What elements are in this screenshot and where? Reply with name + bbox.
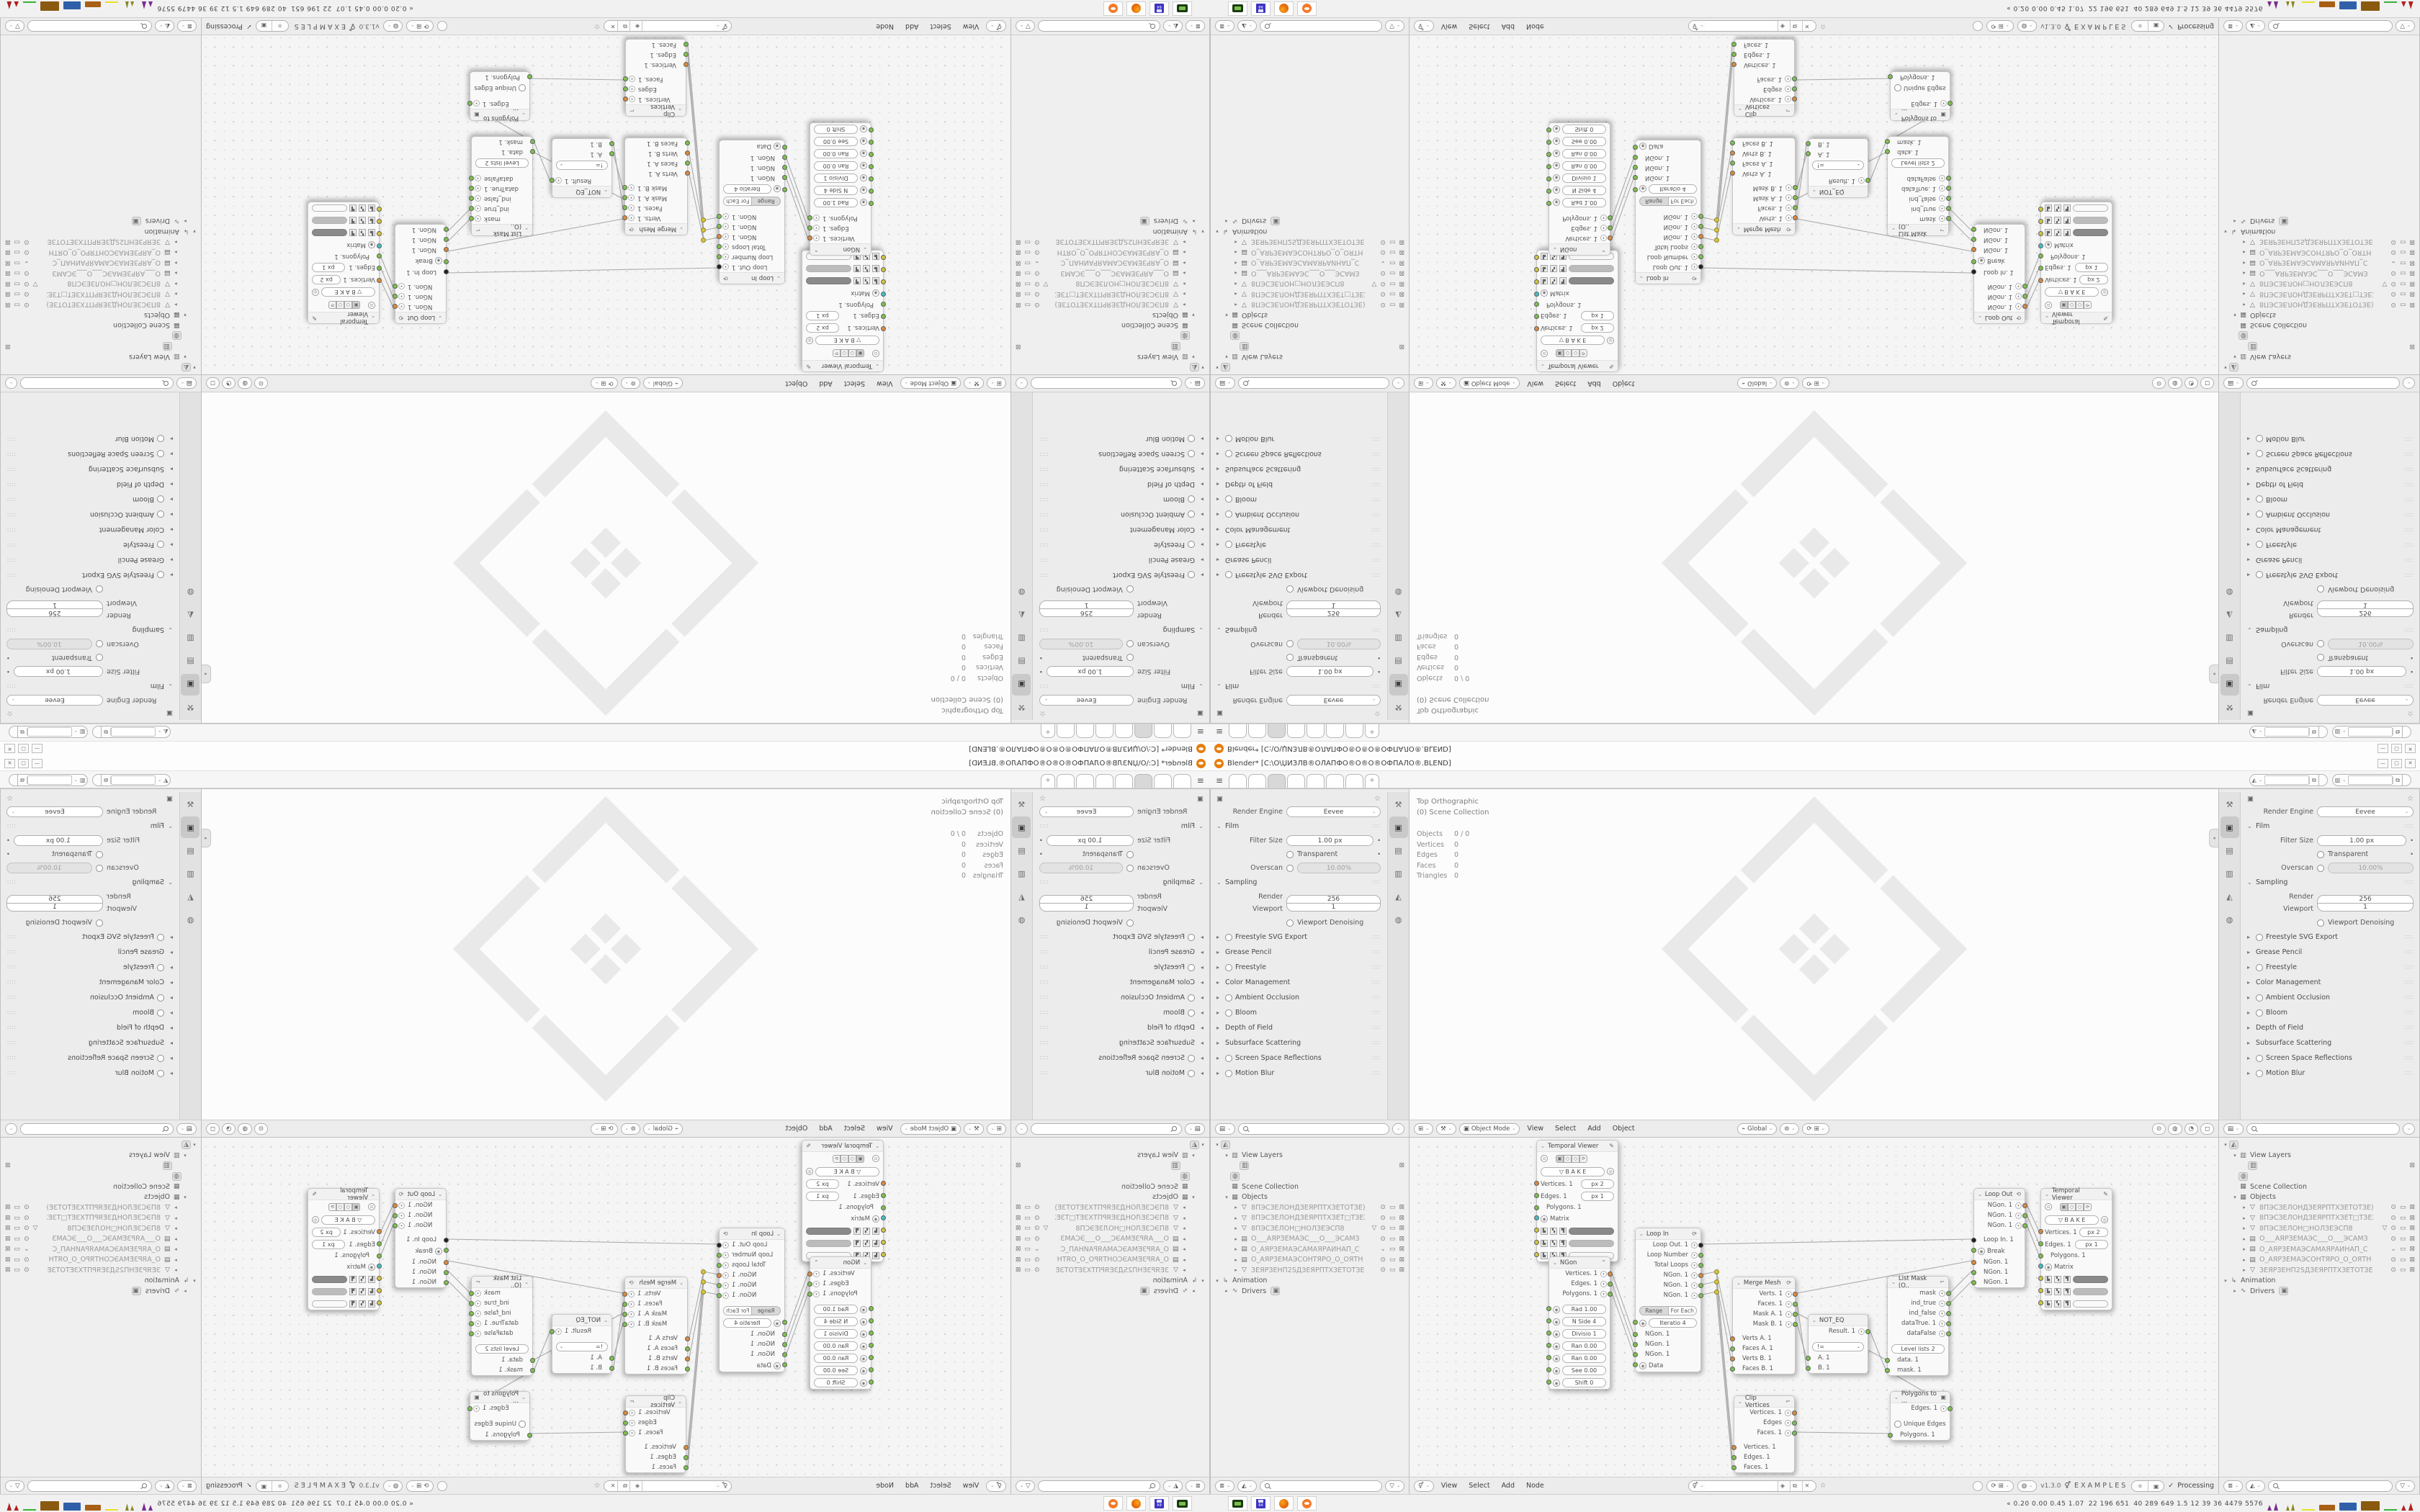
disclosure-icon[interactable]: ▸ bbox=[172, 1225, 179, 1231]
outliner-editor-type-button[interactable]: ≣⌄ bbox=[1186, 1480, 1205, 1492]
bake-button[interactable]: ▽ B A K E bbox=[2045, 288, 2099, 297]
filter-funnel-icon[interactable]: ▽ bbox=[1371, 1225, 1376, 1232]
outliner-display-mode[interactable]: ◭⌄ bbox=[1163, 21, 1183, 32]
mini-toggle-icon[interactable]: ▙ bbox=[872, 1228, 879, 1235]
socket-dropdown-icon[interactable]: ▾ bbox=[1939, 196, 1945, 202]
filter-funnel-icon[interactable]: ▽ bbox=[2382, 280, 2387, 287]
app-menu-icon[interactable]: ≡ bbox=[1216, 775, 1223, 786]
px-field[interactable]: px 2 bbox=[806, 1179, 839, 1189]
panel-checkbox[interactable] bbox=[1225, 451, 1232, 458]
attribute-bar[interactable] bbox=[2073, 1276, 2108, 1283]
toggle-icon[interactable]: ⟳ bbox=[833, 350, 841, 358]
socket-dropdown-icon[interactable]: ▾ bbox=[722, 224, 729, 230]
taskbar-app-floppy[interactable]: 64 bbox=[1149, 1, 1169, 16]
minimize-button[interactable]: — bbox=[2378, 744, 2388, 754]
panel-header-film[interactable]: ⌄Film∷∷ bbox=[6, 819, 173, 834]
outliner-row[interactable]: ▸▤О___АЯРЗЕМАЭС___О___ЭСАМЗ⊙▭⊠ bbox=[1013, 1234, 1206, 1245]
workspace-tab-4[interactable] bbox=[1287, 724, 1305, 738]
input-socket[interactable] bbox=[869, 1306, 874, 1311]
input-socket[interactable] bbox=[2038, 266, 2043, 271]
outliner-row[interactable]: ▸▽8ПЭСЗЕЛОНДЗЕЯРПТХЗЕТ□ТЗЕХ⊙▭⊠ bbox=[2, 1213, 198, 1224]
output-socket[interactable] bbox=[1793, 1322, 1798, 1327]
collapsed-panel-freestyle-svg-export[interactable]: ▸Freestyle SVG Export∷∷ bbox=[6, 930, 173, 945]
input-socket[interactable] bbox=[1546, 1343, 1551, 1348]
value-field[interactable]: Level lists 2 bbox=[475, 158, 529, 168]
socket-dropdown-icon[interactable]: ▾ bbox=[629, 76, 635, 83]
input-toggle-icon[interactable]: ◉ bbox=[1639, 143, 1646, 150]
value-field[interactable]: Level lists 2 bbox=[1891, 1344, 1945, 1354]
copy-icon[interactable]: ⧉ bbox=[18, 777, 27, 784]
reroute-dot[interactable] bbox=[1714, 217, 1719, 222]
outliner-row[interactable]: ▾↳Animation bbox=[1214, 226, 1407, 237]
disclosure-icon[interactable]: ▾ bbox=[2231, 312, 2238, 318]
value-field[interactable]: Iteratio 4 bbox=[723, 184, 771, 194]
taskbar-app-floppy[interactable]: 64 bbox=[1251, 1496, 1270, 1511]
input-socket[interactable] bbox=[1971, 1248, 1976, 1253]
scene-selector-input[interactable] bbox=[111, 775, 156, 785]
disclosure-icon[interactable]: ▸ bbox=[172, 1246, 179, 1252]
properties-tab-scene[interactable]: ◭ bbox=[1389, 886, 1408, 907]
taskbar-app-firefox[interactable] bbox=[1126, 1496, 1146, 1511]
visibility-eye-icon[interactable]: ⊙ bbox=[1034, 1204, 1040, 1211]
output-socket[interactable] bbox=[2022, 1203, 2027, 1208]
node-header[interactable]: ⌄Temporal Viewer✎ bbox=[308, 1189, 379, 1200]
node-loop-in[interactable]: ⌄Loop In⟳Loop Out. 1▾Loop Number▾Total L… bbox=[1635, 1228, 1701, 1372]
output-socket[interactable] bbox=[1698, 1283, 1703, 1288]
mini-toggle-icon[interactable]: ▙ bbox=[2045, 1288, 2052, 1295]
mini-toggle-icon[interactable]: ▜ bbox=[853, 266, 861, 273]
mini-toggle-icon[interactable]: ▜ bbox=[2063, 1288, 2071, 1295]
outliner-row[interactable]: ▸▽8ПЭСЗЕЛОНДЗЕЯРПТХЗЕТ□ТЗЕХ⊙▭⊠ bbox=[1013, 1213, 1206, 1224]
output-socket[interactable] bbox=[393, 294, 398, 300]
visibility-eye-icon[interactable]: ⊙ bbox=[1380, 1204, 1386, 1211]
outliner-search-input[interactable] bbox=[1260, 21, 1383, 32]
input-socket[interactable] bbox=[1971, 238, 1976, 243]
collapsed-panel-depth-of-field[interactable]: ▸Depth of Field∷∷ bbox=[1039, 477, 1204, 492]
disclosure-icon[interactable]: ▸ bbox=[1232, 260, 1240, 266]
input-socket[interactable] bbox=[782, 1352, 787, 1357]
node-temporal-viewer-1[interactable]: ⌄Temporal Viewer✎⊙▣○○⟳▽ B A K E◎Vertices… bbox=[1536, 1140, 1618, 1262]
outliner-row[interactable]: ▸▽8ПЭСЗЕЛОНДЗЕЯРПТХЗЕТОТЗЕ)⊙▭⊠ bbox=[1214, 300, 1407, 310]
disclosure-icon[interactable]: ▸ bbox=[1180, 1246, 1188, 1252]
render-camera-icon[interactable]: ⊠ bbox=[1399, 269, 1404, 276]
properties-filter-button[interactable]: ⌄ bbox=[2403, 378, 2415, 390]
attribute-bar[interactable] bbox=[2073, 1288, 2108, 1295]
mini-toggle-icon[interactable]: ▜ bbox=[2063, 205, 2071, 212]
snap-pair-button[interactable]: ⟳⊞⌄ bbox=[1986, 1480, 2013, 1492]
value-field[interactable]: Divisio 1 bbox=[814, 174, 858, 183]
node-tree-name-input[interactable] bbox=[1706, 22, 1775, 31]
disclosure-icon[interactable]: ▾ bbox=[1214, 1142, 1221, 1148]
outliner-row[interactable]: ▦Scene Collection bbox=[1013, 320, 1206, 331]
reroute-dot[interactable] bbox=[1714, 238, 1719, 243]
input-toggle-icon[interactable]: ◉ bbox=[860, 175, 867, 182]
collapsed-panel-bloom[interactable]: ▸Bloom∷∷ bbox=[1039, 1005, 1204, 1020]
socket-dropdown-icon[interactable]: ▾ bbox=[722, 1272, 729, 1279]
render-camera-icon[interactable]: ⊠ bbox=[2409, 1256, 2415, 1264]
properties-search-input[interactable] bbox=[20, 1123, 174, 1135]
mini-toggle-icon[interactable]: ▚ bbox=[2054, 230, 2061, 237]
view-layer-selector-cap[interactable] bbox=[9, 726, 17, 738]
scene-selector-pill[interactable]: ◭⌄⧉ bbox=[2249, 726, 2319, 738]
input-socket[interactable] bbox=[1731, 1455, 1736, 1460]
snap-pair-button[interactable]: ⟳⊞⌄ bbox=[1986, 21, 2013, 32]
close-button[interactable]: ✕ bbox=[2405, 744, 2416, 754]
input-socket[interactable] bbox=[1534, 1228, 1539, 1233]
properties-tab-scene[interactable]: ◭ bbox=[181, 886, 200, 907]
outliner-row[interactable]: ▾▥View Layers bbox=[2222, 351, 2418, 362]
viewport-display-icon[interactable]: ▭ bbox=[1389, 1256, 1396, 1264]
viewport-display-icon[interactable]: ▭ bbox=[14, 1266, 21, 1274]
output-socket[interactable] bbox=[717, 265, 722, 270]
denoise-checkbox[interactable] bbox=[1286, 586, 1294, 593]
view-layer-selector-pill[interactable]: ▥⌄⧉ bbox=[2332, 726, 2403, 738]
node-header[interactable]: ⌄List Mask (O..⌐ bbox=[472, 224, 532, 235]
visibility-eye-icon[interactable]: ⊙ bbox=[24, 1215, 30, 1222]
disclosure-icon[interactable]: ▸ bbox=[1180, 1215, 1188, 1221]
disclosure-icon[interactable]: ▸ bbox=[1232, 249, 1240, 255]
socket-dropdown-icon[interactable]: ▾ bbox=[1691, 1282, 1698, 1289]
node-loop-out[interactable]: ⌄Loop Out⟲NGon. 1▾NGon. 1▾NGon. 1▾Loop I… bbox=[1973, 224, 2025, 324]
collapsed-panel-freestyle[interactable]: ▸Freestyle∷∷ bbox=[6, 960, 173, 975]
render-camera-icon[interactable]: ⊠ bbox=[1399, 1266, 1404, 1274]
node-editor-type-button[interactable]: ⚥⌄ bbox=[986, 21, 1006, 32]
overscan-checkbox[interactable] bbox=[96, 641, 103, 648]
mini-toggle-icon[interactable]: ▚ bbox=[2054, 217, 2061, 225]
node-header[interactable]: ⌄Loop In⟳ bbox=[720, 272, 784, 284]
input-toggle-icon[interactable]: ◉ bbox=[1553, 1380, 1560, 1387]
visibility-eye-icon[interactable]: ⊙ bbox=[24, 1266, 30, 1274]
px-field[interactable]: px 1 bbox=[312, 1240, 345, 1249]
disclosure-icon[interactable]: ▾ bbox=[1223, 312, 1230, 318]
node-header[interactable]: ⌄Merge Mesh⟳ bbox=[625, 223, 687, 235]
disclosure-icon[interactable]: ▾ bbox=[181, 1194, 189, 1200]
viewport-display-icon[interactable]: ▭ bbox=[1389, 259, 1396, 266]
panel-checkbox[interactable] bbox=[2256, 572, 2263, 579]
mode-selector[interactable]: ▣Object Mode⌄ bbox=[1459, 378, 1520, 390]
input-socket[interactable] bbox=[2038, 232, 2043, 237]
socket-dropdown-icon[interactable]: ▾ bbox=[722, 1242, 729, 1248]
snap-button[interactable]: ⊚⌄ bbox=[1780, 378, 1799, 390]
collapsed-panel-depth-of-field[interactable]: ▸Depth of Field∷∷ bbox=[1216, 477, 1381, 492]
node-header[interactable]: ⌄Loop In⟳ bbox=[720, 1228, 784, 1240]
input-socket[interactable] bbox=[444, 1248, 449, 1253]
outliner-row[interactable]: ▾▦Objects bbox=[2, 1192, 198, 1203]
panel-header-film[interactable]: ⌄Film∷∷ bbox=[1039, 819, 1204, 834]
outliner-row[interactable]: ▸▽8ПЭСЗЕЛОНДЗЕЯРПТХЗЕТ□ТЗЕХ⊙▭⊠ bbox=[1214, 289, 1407, 300]
input-toggle-icon[interactable]: ◉ bbox=[872, 290, 879, 297]
mini-toggle-icon[interactable]: ▜ bbox=[349, 1300, 357, 1308]
outliner-editor-type-button[interactable]: ≣⌄ bbox=[1215, 1480, 1234, 1492]
disclosure-icon[interactable]: ▸ bbox=[172, 260, 179, 266]
output-socket[interactable] bbox=[469, 1321, 474, 1326]
segmented-control[interactable]: RangeFor Each bbox=[1639, 197, 1697, 206]
output-socket[interactable] bbox=[717, 1283, 722, 1288]
value-field[interactable]: N Side 4 bbox=[1562, 1317, 1606, 1326]
value-field[interactable]: Rad 1.00 bbox=[1562, 1305, 1606, 1314]
output-socket[interactable] bbox=[807, 226, 812, 231]
render-camera-icon[interactable]: ⊠ bbox=[2409, 259, 2415, 266]
render-samples-field[interactable]: 256 bbox=[6, 895, 103, 904]
render-camera-icon[interactable]: ⊠ bbox=[2409, 301, 2415, 308]
viewport-display-icon[interactable]: ▭ bbox=[2400, 1204, 2406, 1211]
input-socket[interactable] bbox=[1730, 1356, 1735, 1362]
mini-toggle-icon[interactable]: ▙ bbox=[2045, 217, 2052, 225]
px-field[interactable]: px 1 bbox=[2075, 1240, 2108, 1249]
mini-toggle-icon[interactable]: ▙ bbox=[1541, 1252, 1548, 1259]
denoise-checkbox[interactable] bbox=[2317, 586, 2324, 593]
disclosure-icon[interactable]: ▸ bbox=[1232, 281, 1240, 287]
menu-select[interactable]: Select bbox=[1551, 379, 1580, 387]
node-checkbox[interactable] bbox=[1894, 1421, 1901, 1428]
outliner-row[interactable]: ▸▤О_АЯРЗЕМАЭСАМАЯРАИНАП_С⌄▭⊠ bbox=[1013, 1244, 1206, 1255]
panel-checkbox[interactable] bbox=[2256, 964, 2263, 971]
toggle-icon[interactable]: ⟳ bbox=[833, 1155, 841, 1163]
output-socket[interactable] bbox=[1698, 1273, 1703, 1278]
px-field[interactable]: px 1 bbox=[1581, 1192, 1614, 1201]
visibility-eye-icon[interactable]: ⊙ bbox=[24, 248, 30, 256]
menu-view[interactable]: View bbox=[1437, 22, 1462, 30]
node-header[interactable]: ⌄Clip Vertices⌐ bbox=[1734, 104, 1794, 116]
mini-toggle-icon[interactable]: ▜ bbox=[1559, 266, 1567, 273]
disclosure-icon[interactable]: ▾ bbox=[181, 1153, 189, 1158]
disclosure-icon[interactable]: ▸ bbox=[172, 1236, 179, 1242]
viewport-display-icon[interactable]: ▭ bbox=[2400, 301, 2406, 308]
render-camera-icon[interactable]: ⊠ bbox=[1399, 1246, 1404, 1253]
properties-tab-world[interactable]: ◍ bbox=[2220, 582, 2239, 603]
socket-dropdown-icon[interactable]: ▾ bbox=[1785, 185, 1792, 192]
input-socket[interactable] bbox=[869, 1380, 874, 1385]
viewport-display-icon[interactable]: ▭ bbox=[14, 301, 21, 308]
input-socket[interactable] bbox=[1885, 140, 1890, 145]
attribute-bar[interactable] bbox=[312, 230, 347, 237]
outliner-editor-type-button[interactable]: ≣⌄ bbox=[1215, 21, 1234, 32]
render-camera-icon[interactable]: ⊠ bbox=[1399, 1256, 1404, 1264]
properties-search-input[interactable] bbox=[1238, 1123, 1389, 1135]
panel-checkbox[interactable] bbox=[1225, 572, 1232, 579]
output-socket[interactable] bbox=[1608, 1292, 1613, 1297]
copy-icon[interactable]: ⧉ bbox=[1790, 22, 1800, 32]
disclosure-icon[interactable]: ▸ bbox=[181, 1288, 189, 1294]
render-camera-icon[interactable]: ⊠ bbox=[5, 280, 11, 287]
value-field[interactable]: N Side 4 bbox=[814, 1317, 858, 1326]
display-toggle-group[interactable]: ▣○○⟳ bbox=[328, 1203, 360, 1211]
input-toggle-icon[interactable]: ◉ bbox=[1553, 150, 1560, 158]
viewport-display-icon[interactable]: ▭ bbox=[2400, 238, 2406, 246]
visibility-eye-icon[interactable]: ⊙ bbox=[2390, 1256, 2396, 1264]
panel-checkbox[interactable] bbox=[2256, 451, 2263, 458]
node-loop-in[interactable]: ⌄Loop In⟳Loop Out. 1▾Loop Number▾Total L… bbox=[719, 140, 785, 284]
outliner-row[interactable]: ▸▽8ПЭСЗЕЛОН□НОЛЗЕЭСП8▽⊙▭⊠ bbox=[2, 279, 198, 289]
output-socket[interactable] bbox=[467, 102, 472, 107]
collapsed-panel-motion-blur[interactable]: ▸Motion Blur∷∷ bbox=[1216, 1066, 1381, 1081]
socket-dropdown-icon[interactable]: ▾ bbox=[2015, 284, 2022, 290]
panel-checkbox[interactable] bbox=[2256, 994, 2263, 1002]
collapsed-panel-ambient-occlusion[interactable]: ▸Ambient Occlusion∷∷ bbox=[6, 990, 173, 1005]
input-socket[interactable] bbox=[1971, 270, 1976, 275]
pin-icon[interactable]: ☆ bbox=[1374, 795, 1381, 803]
outliner-row[interactable]: ▸▽8ПЭСЗЕЛОНДЗЕЯРПТХЗЕТОТЗЕ)⊙▭⊠ bbox=[2222, 1202, 2418, 1213]
collapsed-panel-ambient-occlusion[interactable]: ▸Ambient Occlusion∷∷ bbox=[1039, 990, 1204, 1005]
output-socket[interactable] bbox=[469, 217, 474, 222]
viewport-display-icon[interactable]: ▭ bbox=[14, 1215, 21, 1222]
panel-checkbox[interactable] bbox=[1188, 934, 1195, 941]
node-editor-type-button[interactable]: ⚥⌄ bbox=[1414, 21, 1434, 32]
snap-pair-button[interactable]: ⟳⊞⌄ bbox=[406, 21, 433, 32]
panel-checkbox[interactable] bbox=[2256, 496, 2263, 503]
visibility-eye-icon[interactable]: ⊙ bbox=[2390, 269, 2396, 276]
mini-toggle-icon[interactable]: ▚ bbox=[359, 1288, 366, 1295]
outliner-row[interactable]: ▸∿Drivers▣ bbox=[2, 216, 198, 227]
node-header[interactable]: ⌄Clip Vertices⌐ bbox=[626, 104, 686, 116]
viewport-display-icon[interactable]: ▭ bbox=[1389, 280, 1396, 287]
filter-size-field[interactable]: 1.00 px bbox=[14, 835, 103, 846]
menu-node[interactable]: Node bbox=[1522, 1482, 1549, 1490]
outliner-row[interactable]: ▾▥View Layers bbox=[1013, 351, 1206, 362]
visibility-eye-icon[interactable]: ⊙ bbox=[2390, 1266, 2396, 1274]
output-socket[interactable] bbox=[622, 216, 627, 221]
properties-tab-tool[interactable]: ⚒ bbox=[2220, 697, 2239, 719]
outliner-row[interactable]: ▸∿Drivers▣ bbox=[2222, 216, 2418, 227]
viewport-display-icon[interactable]: ▭ bbox=[2400, 1215, 2406, 1222]
snap-button[interactable]: ⊚⌄ bbox=[1780, 1123, 1799, 1135]
outliner-row[interactable]: ▸▤О_АЯРЗЕМАЭСАМАЯРАИНАП_С⌄▭⊠ bbox=[1214, 258, 1407, 269]
node-temporal-viewer-2[interactable]: ⌄Temporal Viewer✎⊙▣○○⟳▽ B A K E◎Vertices… bbox=[308, 202, 380, 324]
visibility-eye-icon[interactable]: ⊙ bbox=[24, 290, 30, 297]
globe-button[interactable]: ◍⌄ bbox=[2017, 21, 2037, 32]
output-socket[interactable] bbox=[2022, 1223, 2027, 1228]
disclosure-icon[interactable]: ▸ bbox=[172, 281, 179, 287]
input-socket[interactable] bbox=[377, 1300, 382, 1305]
render-engine-select[interactable]: Eevee⌄ bbox=[6, 695, 103, 706]
input-toggle-icon[interactable]: ◉ bbox=[1553, 1343, 1560, 1350]
mini-toggle-icon[interactable]: ▜ bbox=[2063, 230, 2071, 237]
viewport-display-icon[interactable]: ▭ bbox=[2400, 1246, 2406, 1253]
input-toggle-icon[interactable]: ◉ bbox=[368, 242, 375, 249]
node-header[interactable]: ⌄Clip Vertices⌐ bbox=[1734, 1396, 1794, 1408]
mini-toggle-icon[interactable]: ▙ bbox=[1541, 1240, 1548, 1247]
attribute-bar[interactable] bbox=[1569, 1228, 1614, 1235]
outliner-display-mode[interactable]: ◭⌄ bbox=[1237, 1480, 1257, 1492]
visibility-eye-icon[interactable]: ⊙ bbox=[2390, 280, 2396, 287]
overscan-field[interactable]: 10.00% bbox=[2328, 639, 2414, 649]
input-socket[interactable] bbox=[1730, 151, 1735, 156]
input-socket[interactable] bbox=[1546, 1331, 1551, 1336]
collapsed-panel-depth-of-field[interactable]: ▸Depth of Field∷∷ bbox=[1216, 1020, 1381, 1035]
bake-button[interactable]: ▽ B A K E bbox=[815, 1167, 879, 1176]
render-camera-icon[interactable]: ⊠ bbox=[1399, 259, 1404, 266]
node-editor-type-button[interactable]: ⚥⌄ bbox=[986, 1480, 1006, 1492]
node-header[interactable]: ⌄NGon⌃ bbox=[810, 243, 871, 255]
input-socket[interactable] bbox=[1633, 176, 1638, 181]
viewport-display-icon[interactable]: ▭ bbox=[2400, 248, 2406, 256]
scene-selector-cap[interactable] bbox=[2319, 726, 2328, 738]
output-socket[interactable] bbox=[393, 1213, 398, 1218]
node-header[interactable]: ⌄NOT_EQ bbox=[552, 1315, 611, 1326]
denoise-checkbox[interactable] bbox=[1286, 919, 1294, 927]
output-socket[interactable] bbox=[622, 196, 627, 201]
menu-add[interactable]: Add bbox=[1497, 22, 1519, 30]
collapsed-panel-motion-blur[interactable]: ▸Motion Blur∷∷ bbox=[1216, 431, 1381, 446]
render-camera-icon[interactable]: ⊠ bbox=[2409, 248, 2415, 256]
outliner-row[interactable]: ▾▦Objects bbox=[2222, 310, 2418, 320]
collapsed-panel-depth-of-field[interactable]: ▸Depth of Field∷∷ bbox=[2247, 477, 2414, 492]
node-header[interactable]: ⌄Merge Mesh⟳ bbox=[1733, 1277, 1795, 1289]
node-loop-in[interactable]: ⌄Loop In⟳Loop Out. 1▾Loop Number▾Total L… bbox=[1635, 140, 1701, 284]
overscan-field[interactable]: 10.00% bbox=[1297, 639, 1381, 649]
socket-dropdown-icon[interactable]: ▾ bbox=[398, 1202, 405, 1209]
workspace-tab-6[interactable] bbox=[1076, 724, 1094, 738]
input-socket[interactable] bbox=[1546, 1318, 1551, 1323]
outliner-search-input[interactable] bbox=[27, 1480, 153, 1492]
viewport-display-icon[interactable]: ▭ bbox=[1025, 1204, 1031, 1211]
denoise-checkbox[interactable] bbox=[96, 586, 103, 593]
input-socket[interactable] bbox=[1534, 280, 1539, 285]
properties-tab-render[interactable]: ▣ bbox=[181, 816, 200, 838]
input-socket[interactable] bbox=[1730, 161, 1735, 166]
properties-tab-tool[interactable]: ⚒ bbox=[181, 697, 200, 719]
input-socket[interactable] bbox=[1546, 165, 1551, 170]
enum-select[interactable]: !=⌄ bbox=[556, 1342, 608, 1351]
reroute-dot[interactable] bbox=[1714, 1279, 1719, 1284]
output-socket[interactable] bbox=[469, 1291, 474, 1296]
output-socket[interactable] bbox=[623, 1410, 628, 1416]
output-socket[interactable] bbox=[1946, 1301, 1951, 1306]
mini-toggle-icon[interactable]: ▜ bbox=[1559, 1228, 1567, 1235]
visibility-eye-icon[interactable]: ⊙ bbox=[1034, 269, 1040, 276]
attribute-bar[interactable] bbox=[1569, 278, 1614, 285]
viewport-display-icon[interactable]: ▭ bbox=[1025, 301, 1031, 308]
toggle-icon[interactable]: ▣ bbox=[352, 1203, 360, 1211]
panel-checkbox[interactable] bbox=[157, 572, 164, 579]
filter-size-field[interactable]: 1.00 px bbox=[1286, 835, 1373, 846]
fake-user-shield-icon[interactable]: ◈ bbox=[1778, 22, 1788, 32]
disclosure-icon[interactable]: ▸ bbox=[1180, 281, 1188, 287]
input-socket[interactable] bbox=[782, 1342, 787, 1347]
filter-size-field[interactable]: 1.00 px bbox=[2317, 835, 2406, 846]
panel-header-film[interactable]: ⌄Film∷∷ bbox=[2247, 678, 2414, 693]
node-clip-vertices[interactable]: ⌄Clip Vertices⌐Vertices. 1▾Edges▾Faces. … bbox=[1734, 39, 1795, 117]
overlay-toggle-2[interactable]: ◍ bbox=[238, 378, 251, 390]
panel-checkbox[interactable] bbox=[157, 511, 164, 518]
disclosure-icon[interactable]: ▾ bbox=[1214, 1278, 1221, 1284]
socket-dropdown-icon[interactable]: ▾ bbox=[475, 186, 481, 192]
toggle-icon[interactable]: ○ bbox=[1572, 350, 1579, 358]
input-socket[interactable] bbox=[1546, 177, 1551, 182]
overlay-toggle-2[interactable]: ◍ bbox=[2168, 378, 2182, 390]
outliner-row[interactable]: ◍ bbox=[2, 1171, 198, 1182]
output-socket[interactable] bbox=[717, 1253, 722, 1258]
properties-tab-tool[interactable]: ⚒ bbox=[181, 793, 200, 815]
toggle-icon[interactable]: ○ bbox=[344, 302, 352, 310]
panel-header-film[interactable]: ⌄Film∷∷ bbox=[1216, 819, 1381, 834]
collapsed-panel-ambient-occlusion[interactable]: ▸Ambient Occlusion∷∷ bbox=[1039, 507, 1204, 522]
unlink-icon[interactable]: ✕ bbox=[1802, 22, 1812, 32]
node-polygons-to-edges[interactable]: ⌄Polygons to ...▣Edges. 1▾Unique EdgesPo… bbox=[1890, 71, 1950, 121]
render-samples-field[interactable]: 256 bbox=[2317, 609, 2414, 618]
collapsed-panel-color-management[interactable]: ▸Color Management∷∷ bbox=[1039, 522, 1204, 537]
properties-tab-world[interactable]: ◍ bbox=[2220, 909, 2239, 930]
input-toggle-icon[interactable]: ◉ bbox=[1553, 187, 1560, 194]
collapsed-panel-motion-blur[interactable]: ▸Motion Blur∷∷ bbox=[6, 1066, 173, 1081]
input-socket[interactable] bbox=[881, 1228, 886, 1233]
input-socket[interactable] bbox=[782, 1362, 787, 1367]
globe-button[interactable]: ◍⌄ bbox=[383, 21, 403, 32]
outliner-row[interactable]: ▸▤О_АЯРЗЕМАЭСАМАЯРАИНАП_С⌄▭⊠ bbox=[2222, 258, 2418, 269]
node-header[interactable]: ⌄Loop Out⟲ bbox=[395, 312, 446, 323]
filter-funnel-icon[interactable]: ▽ bbox=[1044, 280, 1049, 287]
input-socket[interactable] bbox=[685, 1346, 690, 1351]
